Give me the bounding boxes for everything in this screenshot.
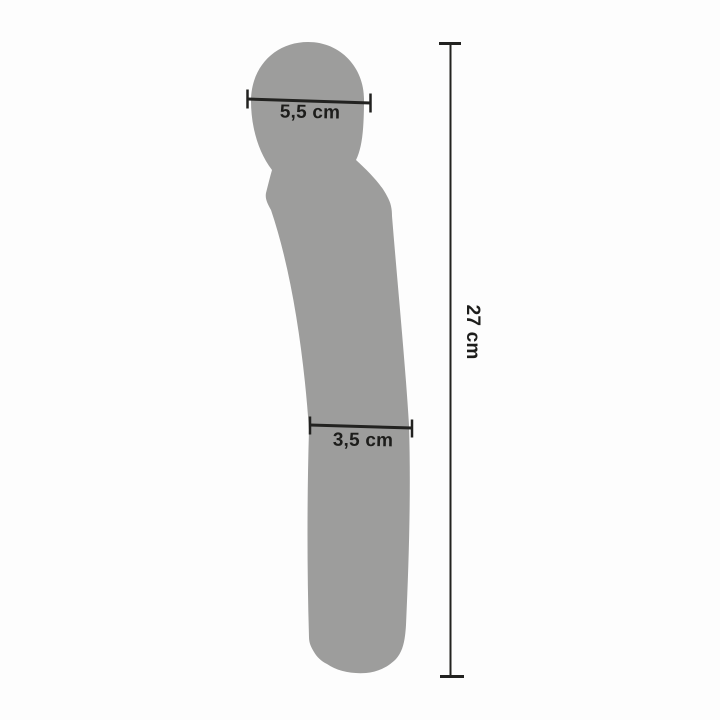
total-length-label: 27 cm (462, 292, 482, 372)
total-length-dimension (439, 44, 464, 677)
head-width-label: 5,5 cm (255, 102, 365, 124)
wand-massager-silhouette (251, 42, 410, 673)
product-dimension-diagram: 5,5 cm 3,5 cm 27 cm (0, 0, 720, 720)
shaft-width-label: 3,5 cm (308, 430, 418, 452)
